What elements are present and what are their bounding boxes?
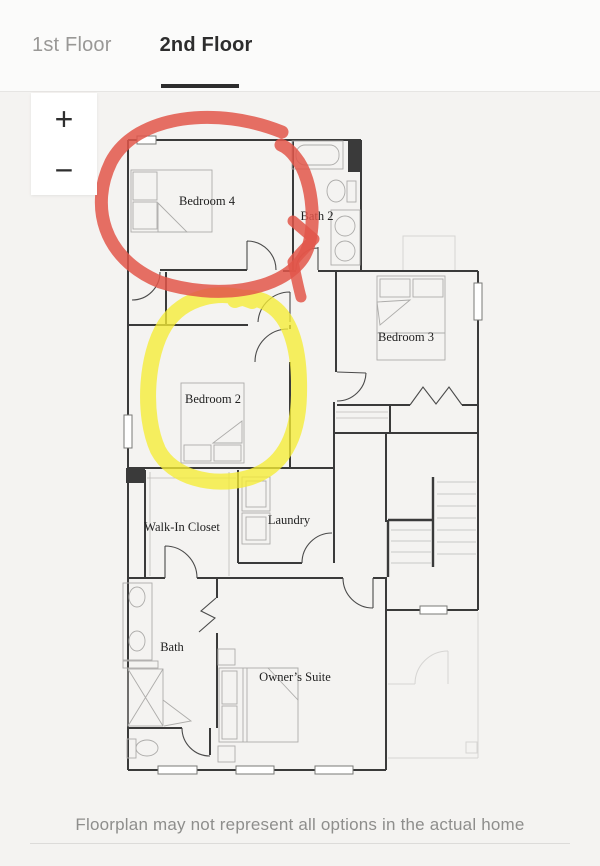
- room-label-bedroom-3: Bedroom 3: [378, 330, 434, 344]
- room-label-bedroom-4: Bedroom 4: [179, 194, 236, 208]
- disclaimer-text: Floorplan may not represent all options …: [0, 815, 600, 835]
- tab-1st-floor[interactable]: 1st Floor: [32, 34, 112, 57]
- room-label-walk-in-closet: Walk-In Closet: [144, 520, 220, 534]
- zoom-in-button[interactable]: +: [31, 93, 97, 144]
- room-label-laundry: Laundry: [268, 513, 311, 527]
- floorplan-viewport: + −: [0, 92, 600, 866]
- zoom-control: + −: [31, 93, 97, 195]
- staircase: [388, 477, 476, 577]
- room-label-bath: Bath: [160, 640, 184, 654]
- zoom-out-button[interactable]: −: [31, 144, 97, 195]
- yellow-circle-annotation: [148, 295, 299, 481]
- floor-tab-bar: 1st Floor 2nd Floor: [0, 0, 600, 57]
- tab-2nd-floor[interactable]: 2nd Floor: [160, 34, 253, 57]
- floor-tabs-header: 1st Floor 2nd Floor: [0, 0, 600, 92]
- footer-divider: [30, 843, 570, 844]
- room-label-bedroom-2: Bedroom 2: [185, 392, 241, 406]
- active-tab-underline: [161, 84, 239, 88]
- room-label-owners-suite: Owner’s Suite: [259, 670, 331, 684]
- footer: Floorplan may not represent all options …: [0, 814, 600, 866]
- floorplan-canvas[interactable]: Bedroom 4 Bath 2 Bedroom 3 Bedroom 2 Wal…: [0, 92, 600, 818]
